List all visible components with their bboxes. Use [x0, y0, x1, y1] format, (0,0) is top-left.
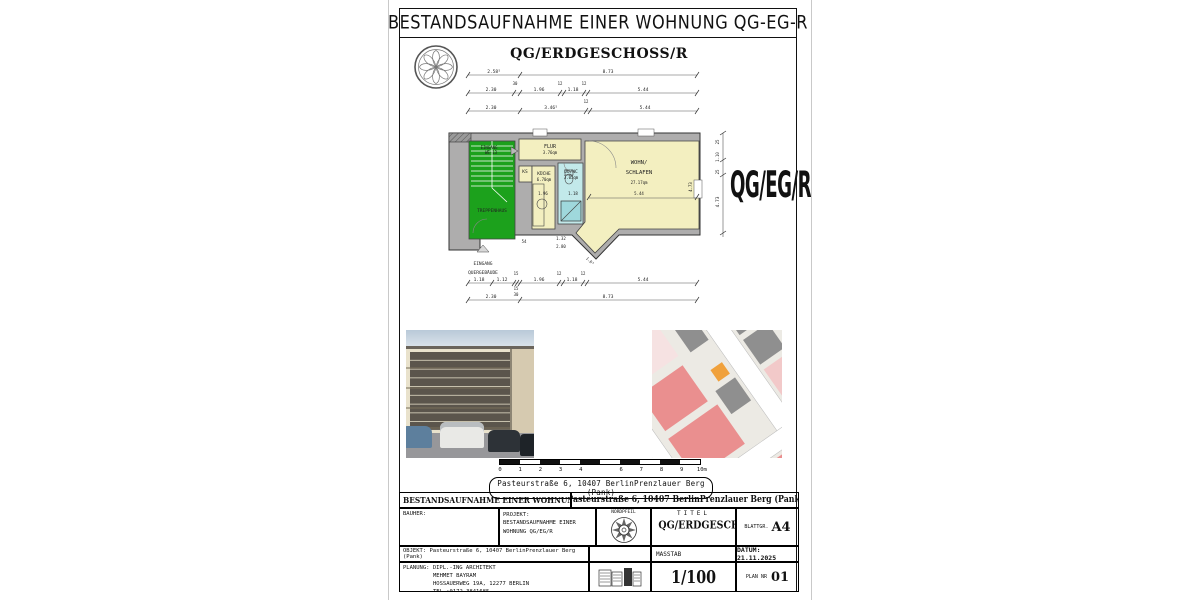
- label-eingang-quer: EINGANG: [474, 261, 493, 267]
- svg-text:25: 25: [715, 169, 720, 174]
- cell-datum: DATUM: 21.11.2025: [736, 546, 799, 562]
- svg-text:2.80: 2.80: [556, 244, 566, 249]
- compass-icon: [609, 515, 639, 545]
- svg-text:1.12: 1.12: [497, 277, 508, 283]
- svg-text:1.10: 1.10: [715, 152, 720, 162]
- cell-masstab-label: MASSTAB: [651, 546, 736, 562]
- svg-text:30: 30: [513, 81, 518, 86]
- cell-nordpfeil: NORDPFEIL: [596, 508, 651, 546]
- label-ks: KS: [522, 169, 528, 175]
- titleblock-header-right: Pasteurstraße 6, 10407 BerlinPrenzlauer …: [571, 492, 799, 508]
- svg-text:3.05qm: 3.05qm: [564, 175, 579, 180]
- room-wohn-schlafen: [576, 141, 699, 253]
- titleblock-header-left: BESTANDSAUFNAHME EINER WOHNUNG QG/EG/R: [399, 492, 571, 508]
- sheet-title: BESTANDSAUFNAHME EINER WOHNUNG QG-EG-R: [388, 12, 808, 34]
- svg-text:SCHLAFEN: SCHLAFEN: [626, 170, 653, 176]
- svg-text:27.17qm: 27.17qm: [631, 180, 648, 185]
- svg-text:4.73: 4.73: [715, 196, 721, 207]
- cell-projekt: PROJEKT: BESTANDSAUFNAHME EINER WOHNUNG …: [499, 508, 596, 546]
- svg-text:15: 15: [514, 271, 519, 276]
- svg-text:6.70qm: 6.70qm: [537, 177, 552, 182]
- svg-text:1.32: 1.32: [556, 236, 566, 241]
- svg-text:2.30: 2.30: [486, 294, 497, 300]
- svg-text:8.73: 8.73: [603, 294, 614, 300]
- floor-code-label: QG/EG/R: [730, 163, 811, 206]
- svg-text:12: 12: [581, 271, 586, 276]
- svg-text:25: 25: [715, 139, 720, 144]
- building-photo: [406, 330, 534, 458]
- cell-elevation-sketch: [589, 562, 651, 592]
- svg-text:5.44: 5.44: [640, 105, 651, 111]
- svg-text:2.30: 2.30: [486, 87, 497, 93]
- svg-text:15: 15: [514, 286, 519, 291]
- building-elevation-icon: [598, 566, 642, 588]
- photo-car: [488, 430, 520, 452]
- svg-text:2.30: 2.30: [486, 105, 497, 111]
- svg-text:3.46⁵: 3.46⁵: [544, 105, 558, 111]
- plan-sheet: BESTANDSAUFNAHME EINER WOHNUNG QG-EG-R Q…: [388, 0, 812, 600]
- cell-plannr: PLAN NR 01: [736, 562, 799, 592]
- label-wohn: WOHN/: [631, 160, 648, 166]
- svg-text:1.96: 1.96: [534, 277, 545, 283]
- photo-car: [406, 426, 432, 448]
- svg-text:1.18: 1.18: [474, 277, 485, 283]
- cell-objekt: OBJEKT: Pasteurstraße 6, 10407 BerlinPre…: [399, 546, 589, 562]
- photo-van: [440, 422, 484, 448]
- svg-text:12: 12: [558, 81, 563, 86]
- svg-text:12: 12: [582, 81, 587, 86]
- scale-bar-ticks: 0 1 2 3 4 6 7 8 9 10m: [493, 467, 709, 473]
- svg-text:4.73: 4.73: [688, 182, 693, 192]
- svg-text:12: 12: [584, 99, 589, 104]
- svg-text:5.44: 5.44: [634, 191, 644, 196]
- svg-text:8.73: 8.73: [603, 69, 614, 75]
- scale-bar: [499, 459, 701, 465]
- svg-text:12: 12: [557, 271, 562, 276]
- svg-text:1.18: 1.18: [568, 87, 579, 93]
- dim-label: 2.58⁵: [487, 69, 501, 75]
- cell-planung: PLANUNG: DIPL.-ING ARCHITEKT MEHMET BAYR…: [399, 562, 589, 592]
- cell-titel: TITEL QG/ERDGESCHOSS/R: [651, 508, 736, 546]
- svg-text:5.44: 5.44: [638, 87, 649, 93]
- cell-masstab-value: 1/100: [651, 562, 736, 592]
- svg-text:1.18: 1.18: [568, 191, 578, 196]
- svg-text:5.44: 5.44: [638, 277, 649, 283]
- drawing-subtitle: QG/ERDGESCHOSS/R: [449, 46, 749, 62]
- photo-car: [520, 434, 534, 456]
- svg-text:30: 30: [514, 292, 519, 297]
- sheet-titlebar: BESTANDSAUFNAHME EINER WOHNUNG QG-EG-R: [399, 8, 797, 38]
- site-plan-map: [652, 330, 782, 458]
- cell-blattgr: BLATTGR. A4: [736, 508, 799, 546]
- svg-text:WE-13: WE-13: [485, 150, 498, 155]
- cell-bauherr: BAUHER:: [399, 508, 499, 546]
- svg-text:QUERGEBÄUDE: QUERGEBÄUDE: [468, 269, 498, 276]
- svg-text:1.18: 1.18: [567, 277, 578, 283]
- label-kueche: KÜCHE: [537, 170, 551, 177]
- svg-text:1.96: 1.96: [534, 87, 545, 93]
- svg-text:1.96: 1.96: [538, 191, 548, 196]
- svg-text:54: 54: [522, 239, 527, 244]
- label-treppenhaus: TREPPENHAUS: [477, 208, 507, 214]
- svg-text:3.76qm: 3.76qm: [543, 150, 558, 155]
